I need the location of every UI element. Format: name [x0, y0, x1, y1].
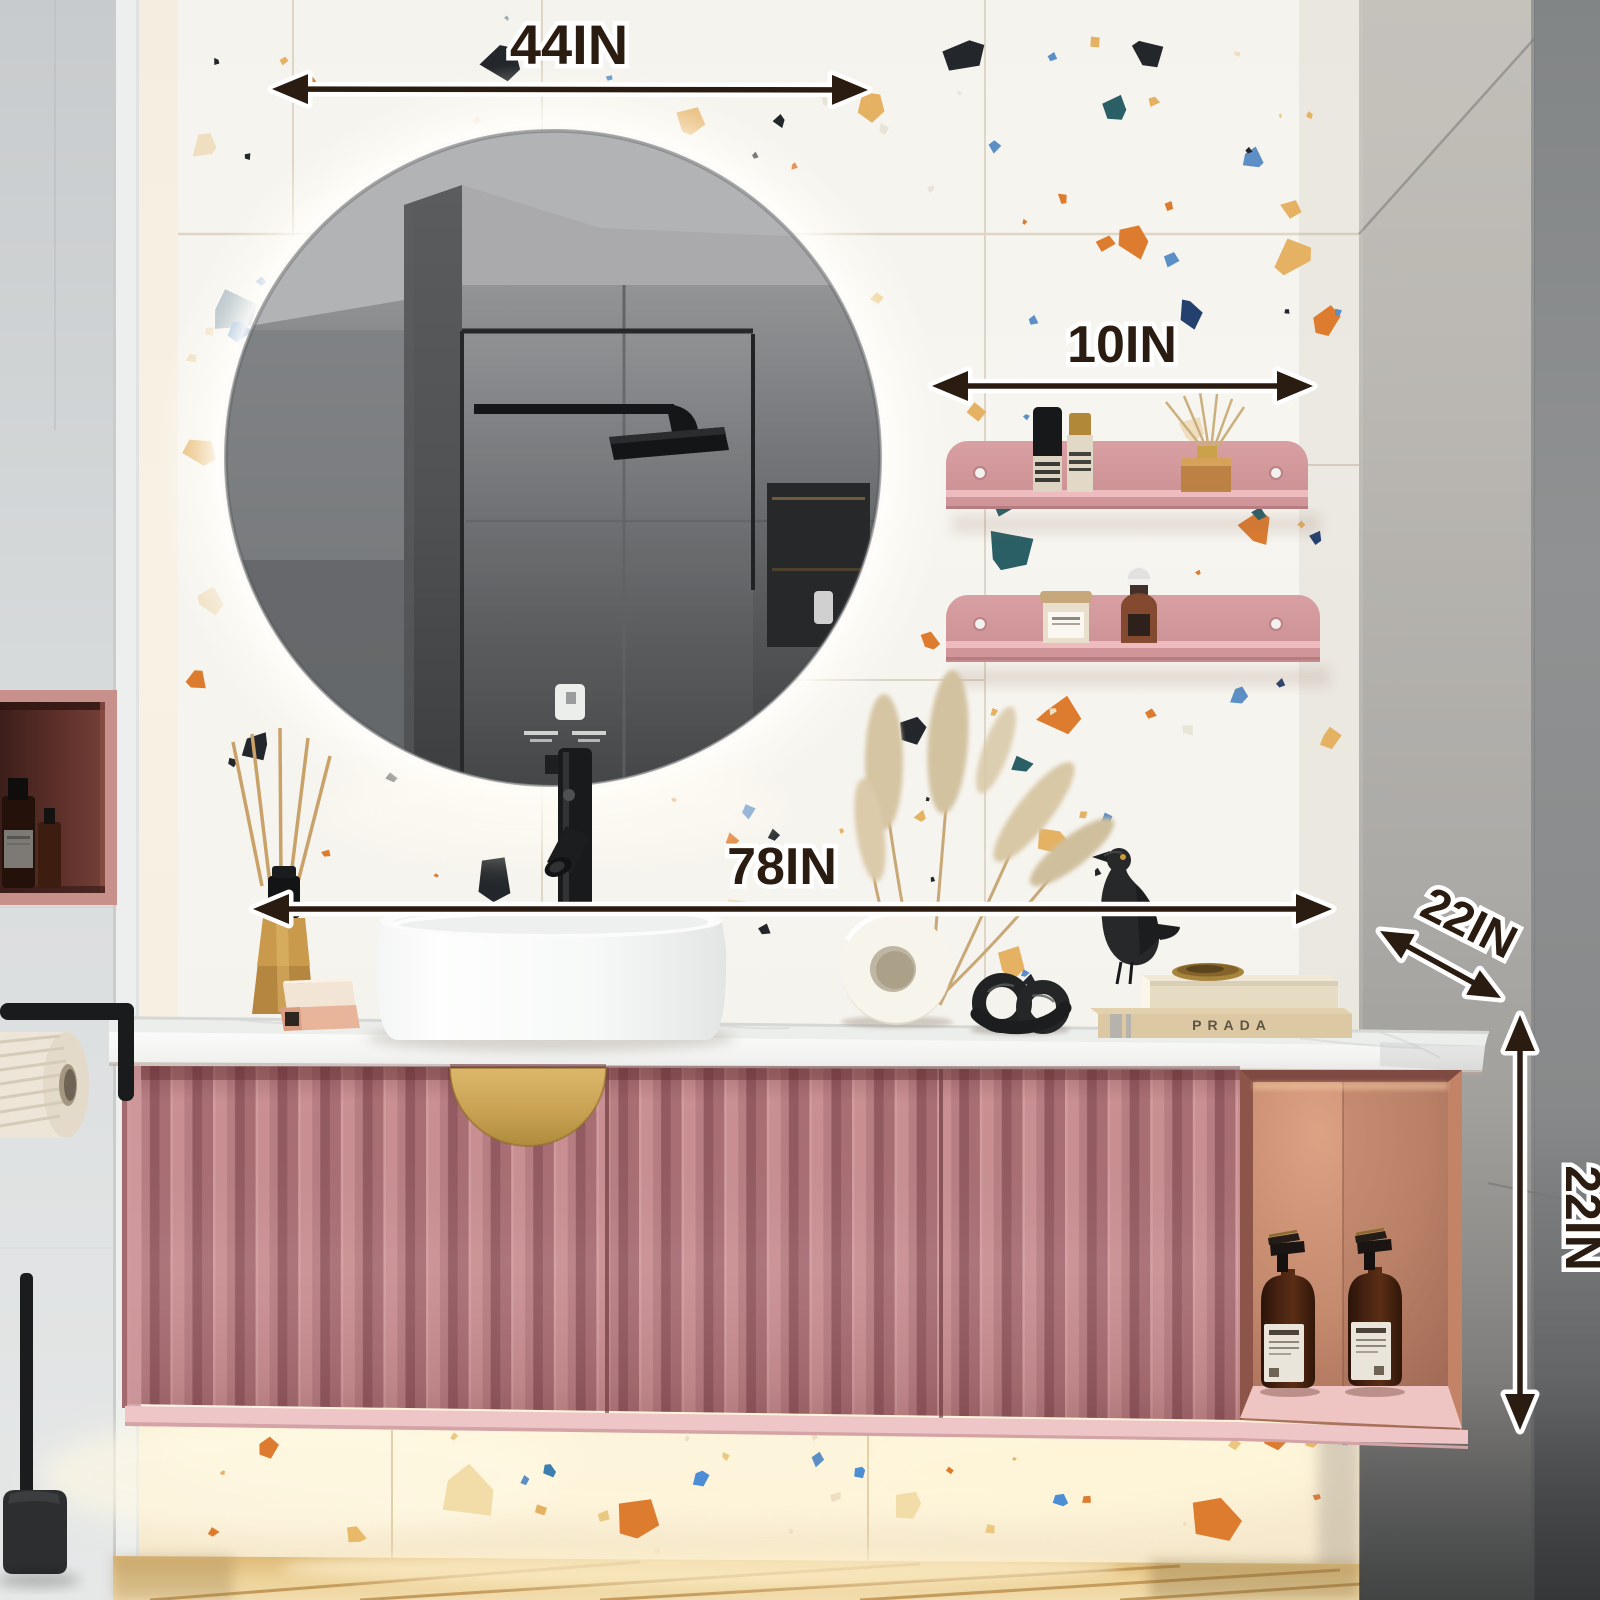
svg-text:78IN: 78IN [727, 838, 837, 896]
svg-text:PRADA: PRADA [1192, 1017, 1272, 1033]
svg-text:10IN: 10IN [1067, 316, 1177, 374]
svg-text:44IN: 44IN [510, 13, 628, 76]
svg-text:22IN: 22IN [1555, 1165, 1600, 1271]
